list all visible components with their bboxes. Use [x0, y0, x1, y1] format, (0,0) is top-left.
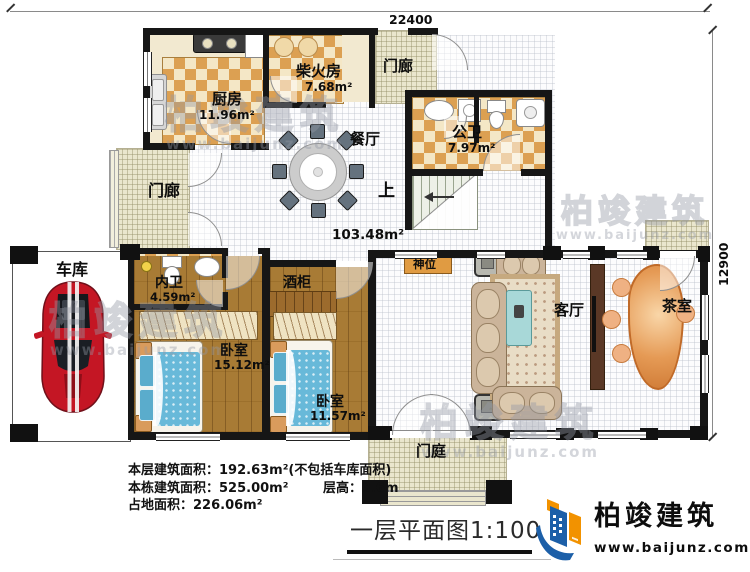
room-label-firewood: 柴火房 — [296, 64, 341, 80]
lamp — [141, 261, 152, 272]
wall — [270, 260, 336, 267]
stairs-arrow-line — [432, 196, 454, 198]
wall — [405, 97, 412, 230]
burner — [202, 38, 213, 49]
table-decor — [514, 305, 524, 318]
pier — [588, 246, 605, 260]
stat-floor-area: 本层建筑面积：192.63m²(不包括车库面积) — [128, 462, 399, 480]
title-underline — [347, 550, 532, 554]
room-label-kitchen: 厨房 — [212, 92, 242, 108]
coffee-table — [506, 290, 532, 346]
firewood-stove-ring — [298, 37, 318, 57]
dimension-top-label: 22400 — [386, 13, 436, 26]
stairs-arrow-head — [424, 192, 433, 202]
burner — [226, 38, 237, 49]
window — [156, 433, 220, 441]
pier — [698, 246, 710, 262]
dining-chair — [349, 164, 364, 179]
window — [701, 355, 709, 393]
window — [598, 431, 646, 439]
room-area-kitchen: 11.96m² — [199, 109, 255, 122]
window — [563, 251, 590, 259]
pier — [10, 424, 38, 442]
room-label-living: 客厅 — [554, 303, 584, 319]
brand-logo-icon — [533, 495, 587, 563]
room-label-tea: 茶室 — [662, 299, 692, 315]
title-underline-light — [333, 559, 551, 560]
window — [510, 431, 560, 439]
bath-sink — [194, 257, 220, 277]
dining-chair — [310, 124, 325, 139]
room-label-bedroom-big: 卧室 — [220, 344, 248, 359]
room-label-porch-top: 门廊 — [383, 59, 413, 75]
window — [617, 251, 647, 259]
dimension-right-label: 12900 — [717, 243, 730, 287]
drawing-title: 一层平面图1:100 — [350, 519, 541, 543]
firewood-stove-ring — [274, 37, 294, 57]
floor-plan-canvas: 22400 12900 — [0, 0, 750, 572]
dimension-line-top — [10, 11, 710, 12]
wall — [405, 90, 552, 97]
wall — [143, 28, 378, 35]
shower-head — [524, 106, 537, 119]
room-area-bedroom-big: 15.12m² — [214, 359, 270, 372]
stairs-up-label: 上 — [378, 183, 395, 201]
window — [477, 251, 505, 259]
pier — [10, 246, 38, 264]
sofa — [471, 282, 507, 394]
window — [143, 98, 152, 132]
sink-basin — [152, 104, 164, 126]
staircase — [412, 173, 478, 230]
room-label-garage: 车库 — [56, 262, 88, 279]
room-label-porch-left: 门廊 — [148, 183, 180, 200]
pier — [690, 426, 708, 440]
stat-land-area: 占地面积：226.06m² — [128, 497, 399, 515]
stove — [193, 33, 247, 53]
tea-stool — [612, 278, 631, 297]
shrine-label: 神位 — [413, 258, 436, 270]
pier — [120, 244, 140, 260]
dimension-line-right — [712, 30, 713, 438]
room-label-inner-bath: 内卫 — [155, 276, 183, 291]
nightstand — [270, 416, 287, 433]
room-area-inner-bath: 4.59m² — [150, 291, 195, 303]
fridge — [245, 31, 265, 58]
wall — [263, 35, 269, 108]
wine-cabinet-label: 酒柜 — [283, 276, 311, 291]
room-area-public-bath: 7.97m² — [448, 142, 495, 155]
wall — [369, 35, 375, 108]
wall — [405, 169, 483, 176]
wall — [231, 143, 269, 150]
wall — [143, 143, 195, 150]
window — [286, 433, 350, 441]
wardrobe — [139, 311, 258, 340]
shower — [516, 99, 545, 127]
tv-screen — [592, 296, 596, 352]
pier — [470, 426, 492, 440]
tea-stool — [602, 310, 621, 329]
room-label-bedroom-small: 卧室 — [316, 395, 344, 410]
sports-car — [34, 280, 112, 414]
wall — [128, 248, 134, 438]
pier — [368, 426, 392, 440]
wall — [269, 102, 326, 108]
sofa — [492, 386, 562, 420]
wall — [262, 248, 270, 438]
sink-basin — [152, 79, 164, 101]
wall — [128, 248, 228, 254]
room-label-entry-court: 门庭 — [416, 444, 446, 460]
wardrobe — [273, 312, 337, 340]
porch-left-steps — [109, 150, 119, 248]
building-stats: 本层建筑面积：192.63m²(不包括车库面积) 本栋建筑面积：525.00m²… — [128, 462, 399, 515]
window — [701, 295, 709, 340]
room-area-bedroom-small: 11.57m² — [310, 410, 366, 423]
wall — [700, 250, 708, 438]
pier — [543, 246, 561, 260]
stat-line2: 本栋建筑面积：525.00m² 层高：3.6m — [128, 480, 399, 498]
brand-name: 柏竣建筑 — [594, 503, 718, 531]
hall-area-label: 103.48m² — [332, 228, 404, 242]
room-label-dining: 餐厅 — [350, 132, 380, 148]
dining-chair — [311, 203, 326, 218]
dining-table-center — [313, 167, 323, 177]
brand-url: www.baijunz.com — [594, 541, 750, 555]
stat-floor-height: 层高：3.6m — [323, 481, 399, 496]
window — [143, 52, 152, 86]
wall — [521, 169, 552, 176]
stat-total-area: 本栋建筑面积：525.00m² — [128, 481, 288, 496]
room-area-firewood: 7.68m² — [305, 81, 352, 94]
tea-stool — [612, 344, 631, 363]
room-label-public-bath: 公卫 — [452, 125, 482, 141]
pier — [486, 480, 512, 504]
dining-chair — [272, 164, 287, 179]
